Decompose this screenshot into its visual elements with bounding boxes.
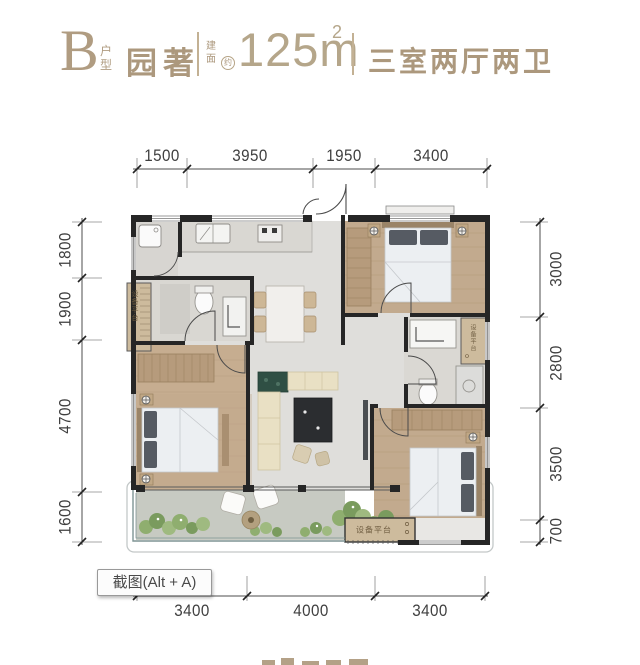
bed-headboard bbox=[137, 408, 142, 472]
toilet bbox=[195, 290, 213, 314]
wardrobe bbox=[347, 228, 371, 306]
pillow bbox=[144, 411, 157, 438]
lamp-icon bbox=[142, 396, 150, 404]
dining-table bbox=[266, 286, 304, 342]
floorplan-drawing bbox=[0, 0, 640, 665]
dimension-label: 3400 bbox=[412, 602, 448, 621]
utility-sink bbox=[139, 225, 161, 247]
toilet bbox=[419, 383, 437, 405]
plant-console bbox=[258, 372, 288, 392]
bed-bench bbox=[222, 414, 229, 466]
bed-headboard bbox=[382, 222, 454, 228]
pillow bbox=[389, 230, 417, 245]
dimension-label: 2800 bbox=[548, 345, 567, 381]
tv-panel bbox=[363, 400, 368, 460]
sofa-back bbox=[288, 372, 338, 390]
shower-tile bbox=[160, 284, 190, 334]
kitchen-counter bbox=[180, 221, 312, 252]
pillow bbox=[461, 484, 474, 512]
dimension-label: 1950 bbox=[326, 147, 362, 166]
pillow bbox=[461, 452, 474, 480]
dimension-label: 4700 bbox=[57, 398, 76, 434]
dimension-label: 3500 bbox=[548, 446, 567, 482]
lamp-icon bbox=[458, 227, 466, 235]
wardrobe bbox=[392, 410, 482, 430]
bed-headboard bbox=[476, 446, 482, 516]
lamp-icon bbox=[142, 475, 150, 483]
dimension-label: 700 bbox=[548, 518, 567, 545]
bedroom2-furniture bbox=[347, 222, 468, 306]
equipment-platform-bottom-label: 设备平台 bbox=[356, 525, 392, 536]
dimension-label: 1600 bbox=[57, 499, 76, 535]
lamp-icon bbox=[370, 227, 378, 235]
dimension-label: 1900 bbox=[57, 291, 76, 327]
pillow bbox=[144, 441, 157, 468]
shower bbox=[410, 320, 456, 348]
dimension-label: 3950 bbox=[232, 147, 268, 166]
screenshot-hint-button[interactable]: 截图(Alt + A) bbox=[97, 569, 212, 596]
dimension-label: 3000 bbox=[548, 251, 567, 287]
stove bbox=[258, 225, 282, 242]
dimension-label: 4000 bbox=[293, 602, 329, 621]
sofa-arm bbox=[258, 392, 280, 470]
lamp-icon bbox=[469, 433, 477, 441]
coffee-table bbox=[294, 398, 332, 442]
vanity bbox=[456, 366, 483, 406]
dimension-label: 3400 bbox=[174, 602, 210, 621]
pillow bbox=[420, 230, 448, 245]
bay-window-sill bbox=[386, 206, 454, 214]
shower bbox=[223, 297, 246, 336]
dimension-label: 1500 bbox=[144, 147, 180, 166]
dimension-label: 1800 bbox=[57, 232, 76, 268]
equipment-platform-left-label: 设备平台 bbox=[131, 290, 138, 346]
equipment-platform-right-label: 设备平台 bbox=[469, 324, 475, 360]
dimension-label: 3400 bbox=[413, 147, 449, 166]
